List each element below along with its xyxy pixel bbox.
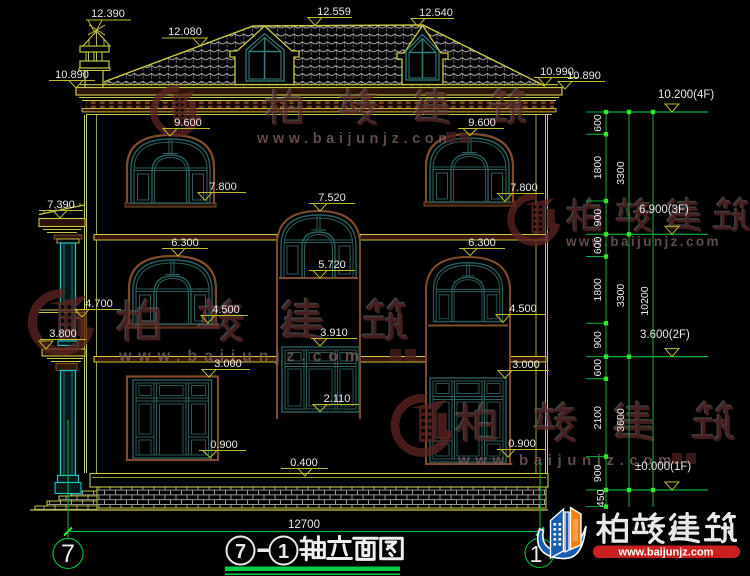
svg-text:6.900(3F): 6.900(3F) [639, 204, 689, 216]
svg-text:3.000: 3.000 [214, 358, 242, 370]
svg-text:900: 900 [592, 209, 604, 227]
svg-text:10200: 10200 [639, 286, 651, 315]
svg-text:900: 900 [592, 331, 604, 349]
svg-text:7.390: 7.390 [47, 199, 75, 211]
svg-text:0.400: 0.400 [290, 457, 318, 469]
svg-text:10.890: 10.890 [567, 70, 601, 82]
svg-text:2100: 2100 [592, 406, 604, 430]
svg-text:9.600: 9.600 [468, 117, 496, 129]
svg-text:www.baijunjz.com: www.baijunjz.com [118, 348, 366, 365]
svg-text:±0.000(1F): ±0.000(1F) [635, 461, 691, 473]
svg-text:0.900: 0.900 [210, 439, 238, 451]
svg-text:1: 1 [278, 541, 289, 563]
svg-text:7.520: 7.520 [318, 192, 346, 204]
svg-text:6.300: 6.300 [468, 237, 496, 249]
svg-text:3600: 3600 [615, 408, 627, 432]
svg-text:10.200(4F): 10.200(4F) [658, 89, 714, 101]
svg-text:6.300: 6.300 [171, 237, 199, 249]
svg-text:3.600(2F): 3.600(2F) [640, 329, 690, 341]
svg-text:7.800: 7.800 [209, 181, 237, 193]
svg-text:12.390: 12.390 [91, 8, 125, 20]
svg-text:7: 7 [235, 541, 246, 563]
svg-text:7.800: 7.800 [510, 182, 538, 194]
svg-text:1800: 1800 [592, 156, 604, 180]
svg-text:3.800: 3.800 [49, 328, 77, 340]
svg-text:600: 600 [592, 236, 604, 254]
svg-text:2.110: 2.110 [324, 393, 351, 405]
svg-text:0.900: 0.900 [508, 438, 536, 450]
svg-text:www.baijunjz.com: www.baijunjz.com [618, 547, 714, 559]
svg-text:4.500: 4.500 [509, 303, 537, 315]
svg-text:12.080: 12.080 [168, 26, 202, 38]
svg-text:3.910: 3.910 [320, 327, 348, 339]
svg-text:5.720: 5.720 [318, 259, 346, 271]
svg-text:12700: 12700 [288, 519, 320, 531]
svg-text:12.559: 12.559 [317, 6, 351, 18]
svg-text:600: 600 [592, 359, 604, 377]
svg-text:1800: 1800 [592, 278, 604, 302]
svg-text:www.baijunjz.com: www.baijunjz.com [565, 234, 721, 249]
svg-text:3.000: 3.000 [512, 359, 540, 371]
svg-text:7: 7 [61, 540, 75, 568]
svg-text:450: 450 [595, 489, 607, 507]
svg-text:10.890: 10.890 [55, 69, 89, 81]
svg-text:12.540: 12.540 [419, 7, 453, 19]
svg-text:www.baijunjz.com: www.baijunjz.com [256, 131, 456, 147]
svg-text:3300: 3300 [615, 161, 627, 185]
svg-text:3300: 3300 [615, 284, 627, 308]
svg-text:900: 900 [592, 464, 604, 482]
svg-text:9.600: 9.600 [174, 117, 202, 129]
svg-text:600: 600 [592, 114, 604, 132]
svg-text:4.500: 4.500 [212, 304, 240, 316]
svg-text:4.700: 4.700 [85, 298, 113, 310]
